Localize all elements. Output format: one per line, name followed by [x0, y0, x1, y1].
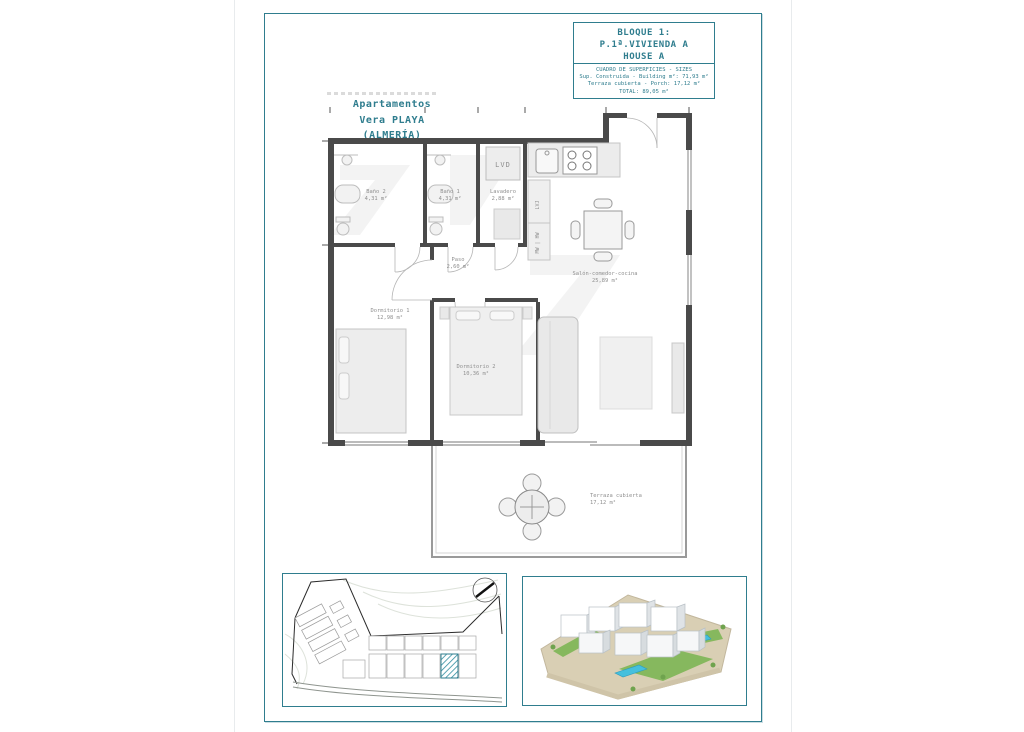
room-label-terraza: Terraza cubierta — [590, 493, 642, 499]
room-area-bano2: 4,31 m² — [365, 195, 388, 202]
unit-title: P.1ª.VIVIENDA A — [574, 39, 714, 51]
title-block-header: BLOQUE 1: P.1ª.VIVIENDA A HOUSE A — [574, 23, 714, 64]
sizes-row-porch: Terraza cubierta - Porch: 17,12 m² — [574, 81, 714, 88]
room-area-dormitorio1: 12,98 m² — [377, 314, 403, 321]
room-area-lavadero: 2,88 m² — [492, 195, 515, 202]
room-area-dormitorio2: 10,36 m² — [463, 370, 489, 377]
sizes-row-total: TOTAL: 89,05 m² — [574, 89, 714, 96]
road-band — [293, 682, 502, 702]
room-label-bano2: Baño 2 — [366, 189, 385, 195]
living-furniture — [538, 317, 684, 433]
mw-hw-label: MW | HW — [535, 231, 541, 253]
room-label-bano1: Baño 1 — [440, 189, 459, 195]
site-plan-inset — [282, 573, 507, 707]
fine-print-line — [327, 92, 439, 95]
room-label-dormitorio2: Dormitorio 2 — [457, 364, 496, 370]
room-area-terraza: 17,12 m² — [590, 499, 616, 506]
plan-sheet-page: BLOQUE 1: P.1ª.VIVIENDA A HOUSE A CUADRO… — [0, 0, 1024, 732]
lvd-label: LVD — [495, 161, 511, 169]
block-title: BLOQUE 1: — [574, 27, 714, 39]
room-label-lavadero: Lavadero — [490, 189, 516, 195]
dining-table-symbol — [571, 199, 634, 261]
title-block: BLOQUE 1: P.1ª.VIVIENDA A HOUSE A CUADRO… — [573, 22, 715, 99]
room-label-salon: Salón-comedor-cocina — [573, 270, 638, 277]
sizes-table: CUADRO DE SUPERFICIES - SIZES Sup. Const… — [574, 64, 714, 96]
terrace — [432, 446, 686, 557]
highlighted-unit — [441, 654, 458, 678]
terrace-table-symbol — [499, 474, 565, 540]
floor-plan: LVD LVJ MW | HW — [300, 105, 720, 570]
aerial-render-inset — [522, 576, 747, 706]
upper-houses — [295, 595, 362, 663]
house-title: HOUSE A — [574, 51, 714, 63]
lvj-label: LVJ — [535, 200, 541, 209]
hob-symbol — [563, 147, 597, 174]
room-area-bano1: 4,31 m² — [439, 195, 462, 202]
room-area-paso: 2,60 m² — [447, 263, 470, 270]
room-area-salon: 25,89 m² — [592, 277, 618, 284]
room-label-dormitorio1: Dormitorio 1 — [371, 308, 410, 314]
room-label-paso: Paso — [452, 257, 465, 263]
